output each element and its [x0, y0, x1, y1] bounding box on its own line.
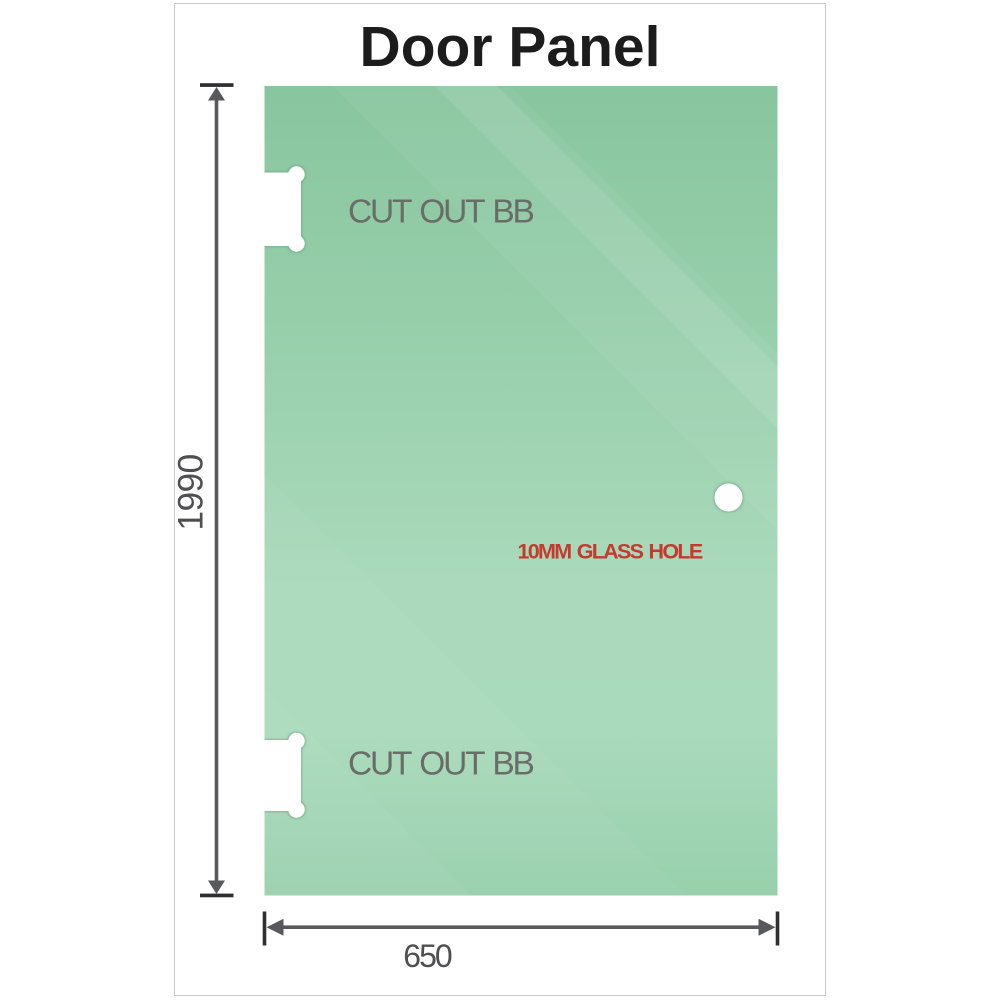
svg-text:CUT OUT BB: CUT OUT BB [348, 746, 534, 783]
svg-text:650: 650 [403, 938, 452, 974]
svg-text:Door Panel: Door Panel [360, 15, 661, 79]
svg-text:1990: 1990 [171, 454, 211, 530]
svg-text:10MM GLASS HOLE: 10MM GLASS HOLE [518, 540, 703, 564]
svg-text:CUT OUT BB: CUT OUT BB [348, 194, 534, 231]
